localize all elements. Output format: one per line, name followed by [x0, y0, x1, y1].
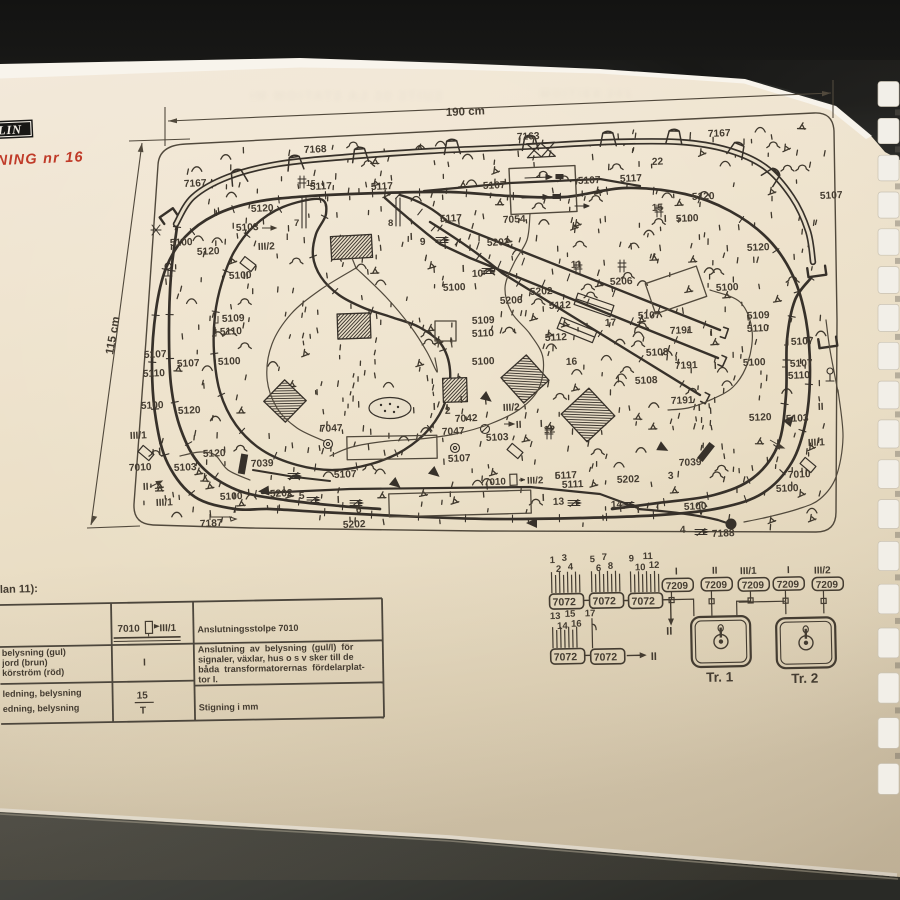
svg-text:5117: 5117: [440, 213, 463, 225]
svg-text:7209: 7209: [777, 579, 800, 590]
svg-text:7168: 7168: [304, 144, 327, 156]
svg-text:6: 6: [596, 563, 602, 574]
svg-text:7072: 7072: [592, 595, 616, 607]
svg-text:7047: 7047: [320, 423, 343, 435]
svg-text:15: 15: [137, 690, 149, 701]
svg-text:5107: 5107: [578, 175, 601, 187]
svg-text:5120: 5120: [178, 405, 201, 417]
svg-text:7191: 7191: [671, 395, 694, 407]
svg-text:5111: 5111: [562, 479, 584, 491]
svg-text:II: II: [243, 271, 249, 282]
svg-text:7039: 7039: [679, 457, 702, 469]
svg-text:Stigning i mm: Stigning i mm: [199, 701, 259, 712]
svg-text:12: 12: [544, 424, 556, 435]
svg-text:7163: 7163: [517, 131, 540, 143]
svg-text:5109: 5109: [222, 313, 245, 325]
svg-text:lan 11):: lan 11):: [0, 583, 38, 596]
svg-text:7010: 7010: [117, 624, 140, 635]
svg-text:7072: 7072: [594, 651, 618, 663]
svg-text:5120: 5120: [692, 191, 715, 203]
svg-text:5109: 5109: [472, 315, 495, 327]
svg-text:5110: 5110: [143, 368, 166, 380]
svg-text:5110: 5110: [220, 326, 243, 338]
svg-text:7: 7: [602, 552, 608, 563]
svg-text:4: 4: [568, 562, 574, 573]
svg-text:10: 10: [635, 562, 646, 573]
svg-text:5110: 5110: [788, 370, 811, 382]
svg-text:II: II: [516, 420, 522, 431]
svg-text:5100: 5100: [220, 491, 243, 503]
svg-text:5107: 5107: [334, 469, 357, 481]
svg-text:7209: 7209: [666, 581, 689, 592]
svg-text:14: 14: [557, 621, 569, 632]
svg-text:22: 22: [652, 156, 664, 167]
svg-text:5107: 5107: [483, 180, 506, 192]
svg-text:III/2: III/2: [814, 565, 831, 576]
svg-text:5107: 5107: [177, 358, 200, 370]
svg-text:5117: 5117: [310, 181, 333, 193]
svg-text:5110: 5110: [472, 328, 495, 340]
svg-text:7042: 7042: [455, 413, 478, 425]
svg-text:2: 2: [556, 564, 562, 575]
svg-text:5100: 5100: [684, 501, 707, 513]
svg-text:II: II: [818, 402, 824, 413]
svg-text:9: 9: [629, 553, 635, 564]
svg-text:5103: 5103: [174, 462, 197, 474]
svg-text:5103: 5103: [236, 222, 259, 234]
svg-text:II: II: [651, 651, 657, 663]
svg-text:5: 5: [299, 491, 305, 502]
svg-text:III/1: III/1: [159, 623, 176, 634]
svg-text:III/2: III/2: [503, 402, 521, 414]
svg-text:5109: 5109: [747, 310, 770, 322]
svg-text:5100: 5100: [443, 282, 466, 294]
svg-text:5120: 5120: [747, 242, 770, 254]
svg-text:5202: 5202: [617, 474, 640, 486]
svg-text:IM MOITAT2 AJ 30 3TIU2: IM MOITAT2 AJ 30 3TIU2: [250, 88, 444, 103]
svg-text:III/2: III/2: [527, 475, 544, 487]
svg-text:7054: 7054: [503, 214, 526, 226]
svg-text:5108: 5108: [646, 347, 669, 359]
svg-text:5107: 5107: [790, 358, 813, 370]
svg-text:tor I.: tor I.: [198, 674, 218, 684]
svg-text:15: 15: [652, 202, 664, 213]
svg-text:8: 8: [608, 561, 614, 572]
svg-text:17: 17: [585, 608, 596, 619]
svg-text:16: 16: [566, 356, 578, 367]
svg-text:7010: 7010: [484, 476, 507, 488]
svg-text:I: I: [787, 565, 790, 576]
svg-text:5117: 5117: [620, 173, 643, 185]
svg-text:III/1: III/1: [808, 437, 826, 449]
svg-text:5110: 5110: [747, 323, 770, 335]
svg-text:III/2: III/2: [258, 241, 276, 253]
svg-text:7072: 7072: [552, 596, 576, 608]
svg-text:11: 11: [571, 260, 583, 271]
svg-text:5120: 5120: [749, 412, 772, 424]
svg-text:I: I: [286, 232, 289, 242]
svg-text:13: 13: [553, 496, 565, 507]
svg-text:3: 3: [562, 553, 568, 564]
svg-text:5112: 5112: [545, 332, 568, 344]
svg-text:7188: 7188: [712, 528, 735, 540]
svg-text:belysning (gul): belysning (gul): [2, 647, 66, 658]
svg-text:7191: 7191: [675, 360, 698, 372]
svg-text:5117: 5117: [371, 181, 394, 193]
svg-text:Anslutningsstolpe 7010: Anslutningsstolpe 7010: [197, 623, 298, 635]
svg-text:7191: 7191: [670, 325, 693, 337]
svg-text:9: 9: [420, 237, 426, 248]
svg-text:7039: 7039: [251, 458, 274, 470]
svg-text:III/1: III/1: [156, 497, 174, 509]
svg-text:7187: 7187: [200, 518, 223, 530]
svg-text:edning, belysning: edning, belysning: [3, 703, 80, 714]
svg-text:5100: 5100: [776, 483, 799, 495]
svg-text:5120: 5120: [251, 203, 274, 215]
svg-text:4: 4: [680, 525, 686, 536]
svg-text:7209: 7209: [816, 580, 839, 591]
svg-text:ledning, belysning: ledning, belysning: [3, 688, 82, 699]
svg-text:5100: 5100: [141, 400, 164, 412]
svg-text:7072: 7072: [631, 595, 655, 607]
svg-text:2: 2: [445, 406, 451, 417]
svg-text:körström (röd): körström (röd): [2, 667, 64, 678]
svg-text:5112: 5112: [549, 300, 572, 312]
svg-text:5107: 5107: [448, 453, 471, 465]
svg-text:I: I: [675, 566, 678, 577]
svg-text:5202: 5202: [487, 237, 510, 249]
svg-text:II: II: [143, 482, 149, 493]
svg-text:5202: 5202: [270, 488, 293, 500]
svg-text:14: 14: [611, 499, 623, 510]
svg-text:6: 6: [356, 505, 362, 516]
svg-text:190 cm: 190 cm: [446, 105, 486, 119]
svg-text:5202: 5202: [343, 519, 366, 531]
svg-text:5107: 5107: [791, 336, 814, 348]
svg-text:5107: 5107: [638, 310, 661, 322]
svg-text:5120: 5120: [197, 246, 220, 258]
svg-text:5107: 5107: [820, 190, 843, 202]
svg-text:7047: 7047: [442, 426, 465, 438]
svg-text:MOITIE8 201: MOITIE8 201: [540, 87, 633, 101]
svg-text:7167: 7167: [708, 128, 731, 140]
svg-text:5100: 5100: [716, 282, 739, 294]
svg-text:Tr. 1: Tr. 1: [706, 669, 734, 685]
svg-text:17: 17: [605, 317, 617, 328]
svg-text:5100: 5100: [472, 356, 495, 368]
svg-text:5206: 5206: [500, 295, 523, 307]
svg-text:5108: 5108: [635, 375, 658, 387]
svg-text:7: 7: [294, 218, 299, 229]
svg-text:III/1: III/1: [740, 566, 757, 577]
svg-text:7010: 7010: [788, 469, 811, 481]
svg-text:7209: 7209: [705, 580, 728, 591]
svg-text:II: II: [712, 566, 718, 577]
svg-text:5100: 5100: [170, 237, 193, 249]
svg-text:5100: 5100: [743, 357, 766, 369]
svg-text:LIN: LIN: [0, 122, 22, 137]
svg-text:5100: 5100: [218, 356, 241, 368]
svg-text:5120: 5120: [203, 448, 226, 460]
svg-text:II: II: [666, 626, 672, 638]
svg-text:5107: 5107: [144, 349, 167, 361]
svg-text:5202: 5202: [530, 286, 553, 298]
svg-text:7072: 7072: [554, 651, 578, 663]
svg-text:7167: 7167: [184, 178, 207, 190]
svg-text:5103: 5103: [786, 413, 809, 425]
svg-text:7010: 7010: [129, 462, 152, 474]
svg-text:7209: 7209: [742, 580, 765, 591]
svg-text:12: 12: [649, 560, 660, 571]
svg-text:T: T: [140, 705, 146, 716]
svg-text:III/1: III/1: [130, 430, 148, 442]
svg-text:8: 8: [388, 218, 393, 229]
svg-text:16: 16: [571, 618, 582, 629]
svg-text:5100: 5100: [676, 213, 699, 225]
svg-text:Tr. 2: Tr. 2: [791, 671, 818, 687]
svg-text:5103: 5103: [486, 432, 509, 444]
svg-text:3: 3: [668, 471, 674, 482]
svg-text:5206: 5206: [610, 276, 633, 288]
svg-text:10: 10: [472, 268, 484, 279]
svg-text:I: I: [143, 657, 146, 668]
